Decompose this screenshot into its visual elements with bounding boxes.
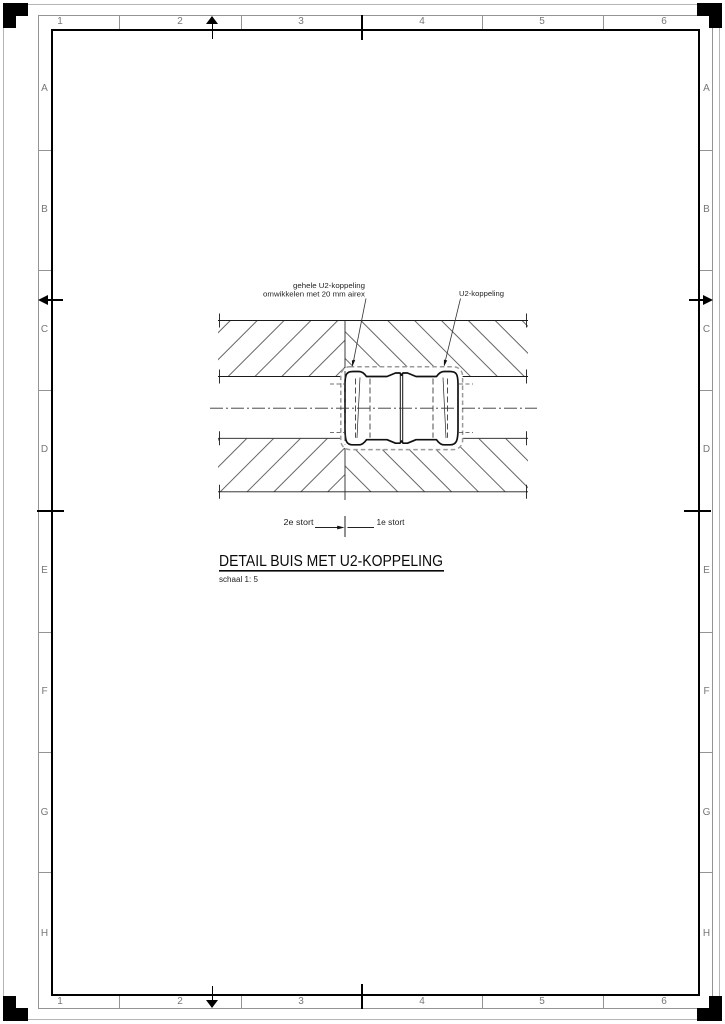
grid-label-left-F: F — [38, 686, 51, 698]
grid-label-right-C: C — [700, 324, 713, 336]
grid-label-left-B: B — [38, 204, 51, 216]
band-tick — [241, 996, 242, 1009]
band-tick — [38, 150, 51, 151]
grid-label-bottom-3: 3 — [291, 996, 311, 1008]
grid-label-top-5: 5 — [532, 16, 552, 28]
grid-label-right-H: H — [700, 928, 713, 940]
band-tick — [700, 872, 713, 873]
fold-mark-bottom-icon — [206, 1000, 218, 1008]
grid-label-top-3: 3 — [291, 16, 311, 28]
band-tick — [700, 150, 713, 151]
band-tick — [482, 15, 483, 29]
pour-label-left: 2e stort — [284, 518, 315, 527]
pour-label-right: 1e stort — [377, 518, 406, 527]
fold-mark-bottom-stem — [212, 986, 214, 1001]
band-tick — [700, 632, 713, 633]
grid-label-top-2: 2 — [170, 16, 190, 28]
grid-label-right-B: B — [700, 204, 713, 216]
corner-mark-bottom-right — [709, 996, 722, 1021]
centering-mark-bottom — [361, 984, 363, 1009]
band-tick — [603, 15, 604, 29]
drawing-title: DETAIL BUIS MET U2-KOPPELING — [219, 553, 443, 570]
dimension-arrowhead-icon — [337, 526, 344, 530]
grid-label-bottom-4: 4 — [412, 996, 432, 1008]
drawing-sheet: 1 2 3 4 5 6 1 2 3 4 5 6 A B C D E F G H … — [0, 0, 725, 1024]
grid-label-top-6: 6 — [654, 16, 674, 28]
band-tick — [482, 996, 483, 1009]
grid-label-top-4: 4 — [412, 16, 432, 28]
band-tick — [700, 390, 713, 391]
grid-label-right-D: D — [700, 444, 713, 456]
grid-label-left-H: H — [38, 928, 51, 940]
corner-mark-bottom-left — [3, 996, 16, 1021]
corner-mark-top-right — [709, 3, 722, 28]
band-tick — [38, 752, 51, 753]
drawing-scale: schaal 1: 5 — [219, 575, 259, 584]
detail-drawing: gehele U2-koppeling omwikkelen met 20 mm… — [195, 265, 550, 595]
fold-mark-right-icon — [703, 295, 713, 305]
grid-label-left-G: G — [38, 807, 51, 819]
band-tick — [700, 270, 713, 271]
band-tick — [700, 752, 713, 753]
grid-label-left-C: C — [38, 324, 51, 336]
band-tick — [38, 390, 51, 391]
grid-label-right-F: F — [700, 686, 713, 698]
grid-label-right-E: E — [700, 565, 713, 577]
grid-label-left-A: A — [38, 83, 51, 95]
grid-label-bottom-6: 6 — [654, 996, 674, 1008]
centering-mark-right — [684, 510, 711, 512]
grid-label-bottom-1: 1 — [50, 996, 70, 1008]
centering-mark-top — [361, 15, 363, 40]
band-tick — [38, 872, 51, 873]
callout-airex-line2: omwikkelen met 20 mm airex — [263, 290, 365, 299]
pour-dimension: 2e stort 1e stort — [284, 516, 406, 537]
centering-mark-left — [37, 510, 64, 512]
grid-label-left-D: D — [38, 444, 51, 456]
fold-mark-left-stem — [47, 299, 63, 301]
grid-label-left-E: E — [38, 565, 51, 577]
grid-label-bottom-2: 2 — [170, 996, 190, 1008]
band-tick — [603, 996, 604, 1009]
hatch-bottom-left — [218, 439, 345, 492]
grid-label-right-A: A — [700, 83, 713, 95]
band-tick — [119, 996, 120, 1009]
band-tick — [241, 15, 242, 29]
grid-label-right-G: G — [700, 807, 713, 819]
band-tick — [38, 632, 51, 633]
grid-label-bottom-5: 5 — [532, 996, 552, 1008]
fold-mark-top-stem — [212, 23, 214, 39]
callout-coupling-label: U2-koppeling — [459, 289, 504, 298]
grid-label-top-1: 1 — [50, 16, 70, 28]
band-tick — [38, 270, 51, 271]
band-tick — [119, 15, 120, 29]
fold-mark-right-stem — [689, 299, 704, 301]
hatch-top-left — [218, 321, 345, 376]
corner-mark-top-left — [3, 3, 16, 28]
view-title: DETAIL BUIS MET U2-KOPPELING schaal 1: 5 — [219, 553, 444, 584]
